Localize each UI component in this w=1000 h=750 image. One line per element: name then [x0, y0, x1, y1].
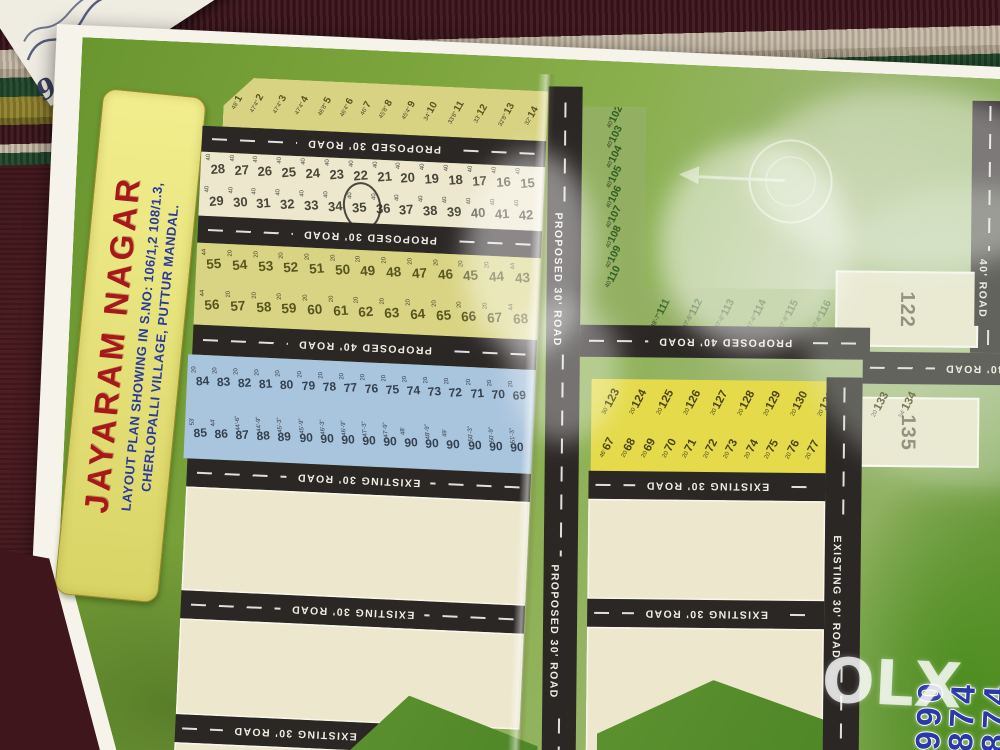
plot-dimension-label: 20 — [817, 409, 825, 418]
plot-cell: 2076 — [782, 438, 802, 462]
plot-cell: 4034 — [327, 198, 343, 214]
plot-cell: 2077 — [802, 438, 822, 462]
plot-number: 69 — [512, 388, 526, 403]
plot-dimension-label: 44' — [210, 418, 217, 426]
road-label: PROPOSED 40' ROAD — [287, 337, 442, 358]
plot-dimension-label: 40 — [275, 188, 281, 195]
plot-cell: 2049 — [360, 263, 376, 279]
plot-cell: 2079 — [301, 378, 315, 393]
plot-dimension-label: 40 — [605, 280, 613, 289]
plot-cell: 46'7 — [358, 99, 375, 117]
plot-dimension-label: 20 — [620, 450, 628, 459]
plot-cell: 4031 — [256, 195, 272, 211]
plot-column-102-110: 4010240103401044010540106401074010840109… — [581, 107, 647, 288]
plot-cell: 2068 — [618, 436, 638, 460]
plot-dimension-label: 20 — [402, 376, 408, 383]
plot-number: 82 — [238, 375, 252, 390]
plot-dimension-label: 20 — [381, 257, 387, 264]
plot-number: 26 — [257, 163, 273, 179]
plot-cell: 2066 — [461, 308, 477, 324]
plot-number: 75 — [385, 382, 399, 397]
plot-cell: 2052 — [283, 259, 299, 275]
plot-cell: 2058 — [256, 299, 272, 315]
plot-dimension-label: 50'-3" — [467, 426, 474, 442]
plot-cell: 2047 — [411, 265, 427, 281]
plot-cell: 2078 — [322, 379, 336, 394]
plot-cell: 45'8"8 — [376, 98, 395, 121]
plot-cell: 20128 — [734, 389, 757, 418]
plot-dimension-label: 20 — [629, 407, 637, 416]
plot-dimension-label: 20 — [790, 409, 798, 418]
plot-cell: 44'-9"88 — [256, 428, 270, 443]
road-proposed-40-right: PROPOSED 40' ROAD — [580, 325, 870, 360]
plot-dimension-label: 20 — [330, 254, 336, 261]
plot-dimension-label: 45'4" — [401, 106, 413, 121]
plot-cell: 4016 — [496, 173, 512, 189]
plot-number: 68 — [512, 311, 528, 327]
plot-dimension-label: 30' — [601, 406, 610, 416]
plot-cell: 2072 — [700, 437, 720, 461]
plot-number: 63 — [384, 305, 400, 321]
plot-cell: 47'4"3 — [269, 93, 288, 116]
road-proposed-30-vertical: PROPOSED 30' ROAD PROPOSED 30' ROAD — [541, 86, 583, 750]
plot-number: 61 — [333, 303, 349, 319]
plot-cell: 2067 — [486, 310, 502, 326]
plot-cell: 4019 — [424, 170, 440, 186]
plot-dimension-label: 44 — [510, 262, 516, 269]
plot-cell: 2071 — [470, 386, 484, 401]
plot-dimension-label: 45'-3" — [277, 417, 284, 433]
plot-dimension-label: 47'4" — [272, 100, 284, 115]
plot-dimension-label: 47'-9" — [383, 422, 390, 438]
open-block-left-2 — [176, 618, 524, 730]
plot-cell: 4018 — [448, 171, 464, 187]
plot-cell: 32'8"13 — [495, 101, 517, 129]
plot-number: 70 — [491, 387, 505, 402]
plot-cell: 4033 — [304, 197, 320, 213]
plot-dimension-label: 20 — [486, 379, 492, 386]
plot-cell: 2063 — [384, 305, 400, 321]
plot-cell: 20126 — [680, 388, 703, 417]
plot-cell: 2071 — [679, 437, 699, 461]
plot-cell: 2059 — [281, 300, 297, 316]
plot-dimension-label: 20 — [227, 250, 233, 257]
plot-dimension-label: 44 — [508, 303, 514, 310]
plot-number: 60 — [307, 301, 323, 317]
plot-number: 74 — [406, 383, 420, 398]
plot-dimension-label: 40 — [204, 185, 210, 192]
plot-cell: 4024 — [305, 165, 321, 181]
plot-number: 76 — [364, 381, 378, 396]
plot-number: 86 — [214, 426, 228, 441]
plot-dimension-label: 40 — [514, 199, 520, 206]
plot-cell: 4023 — [329, 166, 345, 182]
plot-dimension-label: 20 — [251, 292, 257, 299]
plot-number: 65 — [435, 307, 451, 323]
plot-dimension-label: 40 — [490, 198, 496, 205]
plot-dimension-label: 20 — [484, 261, 490, 268]
plot-number: 50 — [334, 262, 350, 278]
plot-number: 15 — [519, 174, 535, 190]
plot-cell: 46'-3"90 — [320, 431, 334, 446]
plot-number: 30 — [232, 193, 248, 209]
plot-cell: 4030 — [232, 193, 248, 209]
plot-dimension-label: 20 — [297, 371, 303, 378]
road-existing-30-right-1: EXISTING 30' ROAD — [588, 471, 825, 501]
plot-row-123-134: 30'1232012420125201262012720128201292013… — [591, 379, 826, 427]
plot-dimension-label: 40 — [372, 161, 378, 168]
plot-number: 29 — [208, 192, 224, 208]
plot-cell: 33'8"11 — [445, 99, 467, 126]
plot-dimension-label: 40 — [252, 187, 258, 194]
plot-number: 90 — [404, 435, 418, 450]
plot-dimension-label: 20 — [641, 450, 649, 459]
plot-cell: 45'4"9 — [398, 99, 417, 122]
plot-number: 40 — [470, 204, 486, 220]
plot-number: 59 — [281, 300, 297, 316]
plot-dimension-label: 20 — [275, 370, 281, 377]
plot-dimension-label: 20 — [710, 408, 718, 417]
plot-cell: 46'8"5 — [314, 95, 333, 118]
plot-cell: 46'4"6 — [337, 96, 356, 119]
plot-dimension-label: 20 — [304, 253, 310, 260]
plot-cell: 47'4"2 — [247, 92, 266, 115]
plot-dimension-label: 20 — [381, 375, 387, 382]
plot-number: 51 — [309, 260, 325, 276]
plot-dimension-label: 40 — [466, 197, 472, 204]
plot-number: 17 — [472, 172, 488, 188]
plot-cell: 2076 — [364, 381, 378, 396]
plot-cell: 44'-6"87 — [235, 427, 249, 442]
plot-cell: 2084 — [195, 373, 209, 388]
plot-dimension-label: 45'8" — [378, 105, 390, 120]
plot-cell: 2075 — [761, 438, 781, 462]
plot-cell: 46'-9"90 — [341, 432, 355, 447]
plot-number: 34 — [327, 198, 343, 214]
plot-dimension-label: 49' — [442, 429, 449, 437]
plot-number: 71 — [470, 386, 484, 401]
plot-cell: 2065 — [435, 307, 451, 323]
plot-cell: 20129 — [761, 389, 784, 418]
plot-dimension-label: 20 — [360, 374, 366, 381]
plot-cell: 2070 — [491, 387, 505, 402]
plot-dimension-label: 40 — [348, 159, 354, 166]
plot-dimension-label: 20 — [805, 452, 813, 461]
plot-dimension-label: 32'8" — [497, 112, 509, 127]
plot-dimension-label: 40 — [325, 158, 331, 165]
plot-cell: 49'90 — [446, 437, 460, 452]
plot-dimension-label: 40 — [323, 190, 329, 197]
plot-cell: 2048 — [386, 264, 402, 280]
plot-dimension-label: 33'8" — [447, 110, 459, 125]
plot-dimension-label: 20 — [444, 378, 450, 385]
plot-dimension-label: 20 — [405, 299, 411, 306]
road-label: PROPOSED 30' ROAD — [549, 204, 567, 354]
plot-cell: 2082 — [238, 375, 252, 390]
plot-number: 62 — [358, 304, 374, 320]
olx-watermark: OLX — [820, 643, 963, 722]
plot-dimension-label: 40 — [515, 167, 521, 174]
plot-cell: 2069 — [638, 437, 658, 461]
plot-dimension-label: 40 — [299, 189, 305, 196]
plot-dimension-label: 20 — [380, 298, 386, 305]
plot-dimension-label: 20 — [356, 255, 362, 262]
road-label: PROPOSED 30' ROAD — [292, 226, 447, 247]
open-block-left-1 — [181, 486, 529, 605]
plot-number: 47 — [411, 265, 427, 281]
plot-number: 38 — [423, 202, 439, 218]
plot-number: 22 — [353, 167, 369, 183]
road-label: PROPOSED 30' ROAD — [545, 556, 563, 706]
road-label: PROPOSED 30' ROAD — [296, 136, 451, 157]
plot-dimension-label: 20 — [702, 451, 710, 460]
road-existing-30-right-2: EXISTING 30' ROAD — [587, 599, 824, 629]
plot-dimension-label: 20 — [233, 368, 239, 375]
plot-cell: 47'-3"90 — [362, 433, 376, 448]
plot-cell: 4040 — [470, 204, 486, 220]
plot-cell: 2077 — [343, 380, 357, 395]
plot-dimension-label: 45'-9" — [298, 418, 305, 434]
plot-dimension-label: 20 — [508, 380, 514, 387]
plot-cell: 2072 — [449, 385, 463, 400]
plot-dimension-label: 20 — [433, 259, 439, 266]
plot-number: 58 — [256, 299, 272, 315]
plot-number: 24 — [305, 165, 321, 181]
plot-dimension-label: 20 — [458, 260, 464, 267]
plot-cell: 2081 — [259, 376, 273, 391]
plot-cell: 4455 — [206, 256, 222, 272]
plot-cell: 44'86 — [214, 426, 228, 441]
plot-dimension-label: 20 — [457, 301, 463, 308]
plot-dimension-label: 46' — [599, 449, 608, 459]
plot-cell: 2057 — [230, 298, 246, 314]
plot-number: 135 — [895, 414, 918, 451]
plot-number: 45 — [463, 267, 479, 283]
plot-number: 33 — [304, 197, 320, 213]
plot-cell: 4017 — [472, 172, 488, 188]
plot-number: 64 — [409, 306, 425, 322]
plot-cell: 2053 — [257, 258, 273, 274]
plot-dimension-label: 40 — [420, 163, 426, 170]
plot-dimension-label: 20 — [191, 366, 197, 373]
plot-dimension-label: 40 — [205, 153, 211, 160]
plot-dimension-label: 46'4" — [339, 103, 351, 118]
plot-dimension-label: 20 — [407, 258, 413, 265]
plot-dimension-label: 20 — [656, 407, 664, 416]
plot-dimension-label: 44'-6" — [235, 415, 242, 431]
plot-cell: 2070 — [659, 437, 679, 461]
road-label: 40' ROAD — [974, 251, 991, 326]
plot-dimension-label: 20 — [226, 291, 232, 298]
plot-cell: 4029 — [208, 192, 224, 208]
plot-number: 28 — [210, 160, 226, 176]
plot-cell: 2069 — [512, 388, 526, 403]
plot-cell: 2074 — [406, 383, 420, 398]
plot-number: 49 — [360, 263, 376, 279]
plot-cell: 20127 — [707, 388, 730, 417]
plot-dimension-label: 20 — [318, 372, 324, 379]
plot-dimension-label: 44'-9" — [256, 416, 263, 432]
plot-cell: 4026 — [257, 163, 273, 179]
plot-cell: 20125 — [653, 388, 676, 417]
plot-dimension-label: 44 — [200, 289, 206, 296]
plot-number: 52 — [283, 259, 299, 275]
plot-number: 83 — [216, 374, 230, 389]
plot-cell: 2054 — [232, 257, 248, 273]
plot-dimension-label: 20 — [683, 407, 691, 416]
plot-cell: 47'4"4 — [292, 94, 311, 117]
plot-cell: 4468 — [512, 311, 528, 327]
plot-dimension-label: 20 — [465, 378, 471, 385]
plot-dimension-label: 46'8" — [316, 102, 328, 117]
plot-dimension-label: 20 — [723, 451, 731, 460]
plot-number: 77 — [343, 380, 357, 395]
plot-cell: 4020 — [400, 169, 416, 185]
plot-row-67-78: 46'6720682069207020712072207320742075207… — [591, 425, 826, 473]
plot-cell: 4037 — [399, 201, 415, 217]
plot-number: 16 — [496, 173, 512, 189]
plot-cell: 2073 — [427, 384, 441, 399]
plot-cell: 48'1 — [229, 93, 246, 111]
plot-number: 84 — [195, 373, 209, 388]
plot-cell: 4021 — [376, 168, 392, 184]
road-40-vertical-right: 40' ROAD — [970, 101, 1000, 353]
plot-cell: 2046 — [437, 266, 453, 282]
open-block-right-1 — [587, 499, 825, 601]
plot-cell: 50'-9"90 — [488, 439, 502, 454]
plot-number: 19 — [424, 170, 440, 186]
plot-cell: 34'10 — [421, 100, 440, 123]
plot-cell: 53'85 — [193, 425, 207, 440]
plot-dimension-label: 20 — [253, 251, 259, 258]
plot-cell: 2051 — [309, 260, 325, 276]
plot-cell: 48'-9"90 — [425, 436, 439, 451]
road-label: EXISTING 30' ROAD — [635, 478, 779, 494]
plot-strip-123-134-67-78: 30'1232012420125201262012720128201292013… — [591, 379, 827, 473]
plot-number: 42 — [518, 206, 534, 222]
plot-dimension-label: 20 — [431, 300, 437, 307]
plot-cell: 2060 — [307, 301, 323, 317]
plot-number: 46 — [437, 266, 453, 282]
plot-cell: 2064 — [409, 306, 425, 322]
plot-dimension-label: 20 — [423, 377, 429, 384]
plot-number: 44 — [488, 269, 504, 285]
plot-cell: 2075 — [385, 382, 399, 397]
plot-cell: 51'-3"90 — [510, 440, 524, 455]
plot-dimension-label: 20 — [784, 452, 792, 461]
plot-dimension-label: 20 — [279, 252, 285, 259]
plot-cell: 47'-9"90 — [383, 434, 397, 449]
plot-dimension-label: 20 — [303, 294, 309, 301]
plot-number: 81 — [259, 376, 273, 391]
road-label: 40' ROAD — [935, 361, 1000, 376]
plot-dimension-label: 20 — [736, 408, 744, 417]
plot-cell: 4443 — [514, 270, 530, 286]
plot-number: 37 — [399, 201, 415, 217]
plot-cell: 46'67 — [596, 436, 617, 461]
plot-number: 55 — [206, 256, 222, 272]
plot-dimension-label: 20 — [764, 451, 772, 460]
plot-cell: 4028 — [210, 160, 226, 176]
plot-dimension-label: 20 — [212, 367, 218, 374]
plot-number: 90 — [446, 437, 460, 452]
plot-number: 57 — [230, 298, 246, 314]
plot-number: 23 — [329, 166, 345, 182]
plot-strip-69-90: 2084208320822081208020792078207720762075… — [183, 354, 535, 474]
plot-dimension-label: 40 — [418, 195, 424, 202]
plot-dimension-label: 20 — [743, 451, 751, 460]
plot-cell: 2062 — [358, 304, 374, 320]
plot-number: 80 — [280, 377, 294, 392]
plot-dimension-label: 20 — [682, 451, 690, 460]
plot-cell: 30'123 — [599, 387, 623, 417]
plot-dimension-label: 53' — [189, 417, 196, 425]
plot-dimension-label: 20 — [763, 408, 771, 417]
plot-number: 25 — [281, 164, 297, 180]
plot-number: 27 — [234, 161, 250, 177]
plot-dimension-label: 20 — [661, 450, 669, 459]
road-40-between-122-135: 40' ROAD — [863, 352, 1000, 386]
plot-dimension-label: 20 — [254, 369, 260, 376]
plot-cell: 45'-9"90 — [298, 430, 312, 445]
plot-cell: 4032 — [280, 196, 296, 212]
road-label: EXISTING 30' ROAD — [281, 602, 425, 623]
plot-number: 72 — [449, 385, 463, 400]
plot-dimension-label: 40 — [229, 154, 235, 161]
plot-dimension-label: 47'-3" — [361, 421, 368, 437]
plot-dimension-label: 20 — [482, 302, 488, 309]
plot-cell: 2045 — [463, 267, 479, 283]
plot-cell: 45'-3"89 — [277, 429, 291, 444]
plot-dimension-label: 40 — [228, 186, 234, 193]
plot-cell: 4039 — [446, 203, 462, 219]
plot-dimension-label: 40 — [253, 155, 259, 162]
plot-number: 31 — [256, 195, 272, 211]
plot-number: 79 — [301, 378, 315, 393]
plot-cell: 2073 — [720, 437, 740, 461]
photo-stage: 9182 JAYARAM NAGAR LAYOUT PLAN SHOWING I… — [0, 0, 1000, 750]
plot-dimension-label: 47'4" — [249, 99, 261, 114]
plot-number: 78 — [322, 379, 336, 394]
road-label: EXISTING 30' ROAD — [223, 723, 367, 744]
plot-number: 53 — [257, 258, 273, 274]
plot-cell: 20130 — [788, 389, 811, 418]
plot-cell: 4038 — [423, 202, 439, 218]
left-map-section: 48'147'4"247'4"347'4"446'8"546'4"646'745… — [172, 75, 548, 750]
plot-number: 39 — [446, 203, 462, 219]
plot-number: 85 — [193, 425, 207, 440]
plot-cell: 48'90 — [404, 435, 418, 450]
plot-dimension-label: 20 — [354, 296, 360, 303]
plot-strip-43-68: 4455205420532052205120502049204820472046… — [194, 243, 541, 341]
plot-dimension-label: 46'-3" — [319, 419, 326, 435]
plot-cell: 2050 — [334, 262, 350, 278]
plot-cell: 33'12 — [471, 102, 490, 125]
plot-number: 20 — [400, 169, 416, 185]
plot-cell: 20124 — [626, 388, 649, 417]
plot-cell: 2083 — [216, 374, 230, 389]
plot-dimension-label: 40 — [277, 156, 283, 163]
plot-dimension-label: 40 — [396, 162, 402, 169]
plot-dimension-label: 20 — [328, 295, 334, 302]
plot-number: 43 — [514, 270, 530, 286]
plot-number: 54 — [232, 257, 248, 273]
plot-dimension-label: 46'-9" — [340, 420, 347, 436]
layout-flyer: JAYARAM NAGAR LAYOUT PLAN SHOWING IN S.N… — [19, 24, 1000, 750]
plot-cell: 2080 — [280, 377, 294, 392]
plot-cell: 4042 — [518, 206, 534, 222]
plot-number: 41 — [494, 205, 510, 221]
